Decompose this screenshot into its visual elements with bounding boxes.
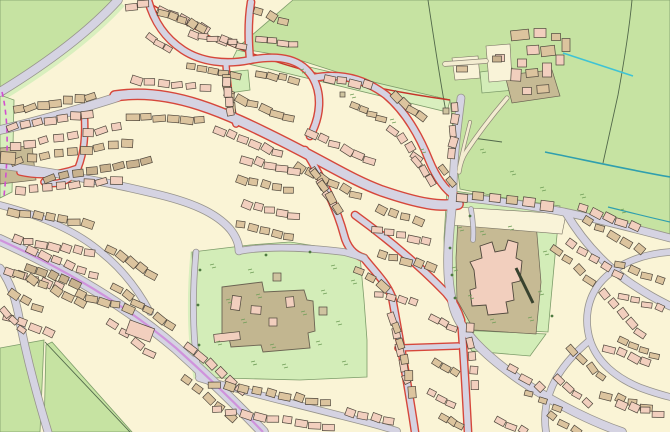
building — [471, 381, 478, 390]
building — [223, 77, 231, 86]
parcel — [486, 44, 512, 82]
small-structure — [340, 92, 345, 97]
building — [400, 354, 409, 364]
building — [86, 167, 98, 175]
building — [110, 177, 122, 185]
building — [383, 417, 395, 425]
building — [29, 185, 38, 193]
building — [277, 40, 289, 47]
building — [125, 3, 137, 11]
building — [562, 39, 570, 52]
building — [450, 114, 459, 125]
building — [24, 238, 33, 244]
building — [67, 148, 77, 156]
map-canvas[interactable] — [0, 0, 670, 432]
building — [110, 301, 120, 308]
building — [186, 82, 196, 89]
building — [84, 249, 95, 257]
building — [320, 400, 330, 406]
building — [518, 59, 527, 67]
building — [224, 87, 232, 97]
building — [272, 183, 282, 191]
building — [252, 386, 263, 395]
building — [322, 424, 334, 431]
building — [641, 407, 650, 413]
building — [208, 382, 220, 388]
building — [282, 416, 292, 424]
building — [631, 297, 640, 304]
tree-dot — [551, 315, 554, 318]
building — [470, 366, 478, 374]
building — [57, 114, 68, 123]
building — [456, 194, 468, 203]
building — [541, 45, 556, 56]
building — [540, 200, 554, 212]
building — [264, 207, 274, 213]
building — [267, 416, 279, 422]
building — [141, 113, 152, 120]
building — [194, 116, 204, 123]
building — [180, 116, 194, 125]
building — [63, 96, 72, 104]
tree-dot — [199, 269, 202, 272]
building — [466, 323, 474, 332]
building — [457, 66, 468, 72]
building — [153, 115, 166, 122]
building — [260, 227, 270, 235]
building — [506, 195, 518, 204]
building — [556, 55, 564, 65]
building — [384, 229, 394, 236]
building — [20, 120, 31, 129]
building — [126, 114, 140, 121]
tree-dot — [265, 254, 268, 257]
building — [295, 419, 308, 428]
building — [100, 164, 111, 173]
building — [247, 100, 259, 108]
road — [471, 209, 473, 240]
building — [526, 68, 539, 77]
building — [44, 117, 57, 125]
building — [67, 131, 78, 140]
building — [319, 307, 327, 315]
building — [236, 221, 245, 228]
building — [226, 107, 234, 116]
building — [144, 79, 155, 86]
building — [108, 141, 118, 149]
building — [449, 125, 456, 137]
building — [552, 34, 561, 41]
building — [375, 292, 384, 297]
building — [19, 210, 30, 217]
building — [207, 36, 218, 41]
building — [537, 85, 550, 94]
building — [264, 162, 277, 170]
building — [287, 167, 300, 175]
building — [212, 406, 221, 413]
building — [527, 45, 540, 55]
building — [84, 179, 95, 187]
building — [400, 213, 410, 221]
school-building — [222, 282, 315, 352]
building — [186, 63, 195, 70]
building — [397, 232, 406, 239]
building — [489, 193, 501, 202]
tree-dot — [454, 297, 457, 300]
building — [522, 197, 535, 207]
road — [249, 2, 251, 60]
building — [45, 212, 55, 221]
building — [267, 37, 276, 43]
building — [286, 297, 295, 308]
building — [158, 79, 170, 87]
building — [251, 306, 262, 315]
building — [137, 0, 148, 7]
building — [308, 422, 321, 429]
building — [225, 409, 236, 416]
building — [276, 209, 288, 218]
building — [83, 129, 94, 137]
building — [614, 261, 625, 269]
building — [511, 29, 530, 41]
building — [167, 115, 179, 123]
building — [72, 169, 83, 178]
building — [49, 99, 62, 108]
building — [641, 302, 652, 309]
tree-dot — [451, 274, 454, 277]
road — [398, 346, 458, 348]
small-structure — [443, 108, 449, 114]
tree-dot — [309, 251, 312, 254]
building — [75, 94, 85, 102]
building — [534, 29, 546, 38]
building — [652, 411, 664, 417]
building — [24, 140, 36, 148]
building — [337, 77, 347, 85]
building — [289, 42, 298, 47]
building — [468, 352, 476, 361]
building — [35, 240, 48, 249]
building — [372, 227, 383, 234]
building — [171, 81, 182, 88]
building — [53, 134, 64, 142]
building — [56, 182, 66, 190]
building — [121, 139, 133, 148]
building — [80, 146, 92, 154]
tree-dot — [197, 304, 200, 307]
building — [0, 151, 16, 164]
tree-dot — [449, 247, 452, 250]
building — [200, 85, 211, 92]
building — [70, 112, 80, 121]
tree-dot — [198, 344, 201, 347]
building — [283, 187, 293, 193]
building — [543, 63, 552, 77]
building — [408, 386, 417, 398]
building — [111, 122, 121, 131]
building — [197, 65, 207, 72]
building — [57, 215, 68, 224]
building — [126, 160, 139, 169]
building — [451, 103, 458, 112]
building — [42, 183, 52, 191]
building — [447, 148, 455, 159]
building — [389, 254, 398, 261]
building — [288, 213, 300, 220]
building — [511, 69, 522, 82]
building — [278, 73, 287, 80]
building — [225, 97, 233, 106]
building — [405, 371, 413, 381]
building — [231, 295, 242, 310]
building — [523, 88, 532, 95]
building — [15, 186, 26, 195]
building — [305, 398, 318, 405]
building — [357, 411, 368, 420]
building — [10, 143, 21, 151]
tree-dot — [469, 215, 472, 218]
building — [283, 233, 293, 241]
building — [256, 36, 268, 43]
building — [248, 178, 258, 186]
building — [27, 154, 36, 162]
building — [472, 192, 484, 201]
building — [228, 39, 237, 44]
building — [269, 318, 277, 326]
building — [276, 165, 288, 172]
building — [13, 105, 25, 114]
building — [68, 219, 80, 225]
building — [273, 273, 281, 281]
map-viewport — [0, 0, 670, 432]
building — [493, 56, 502, 62]
building — [81, 110, 94, 119]
building — [38, 102, 50, 110]
building — [54, 149, 63, 157]
